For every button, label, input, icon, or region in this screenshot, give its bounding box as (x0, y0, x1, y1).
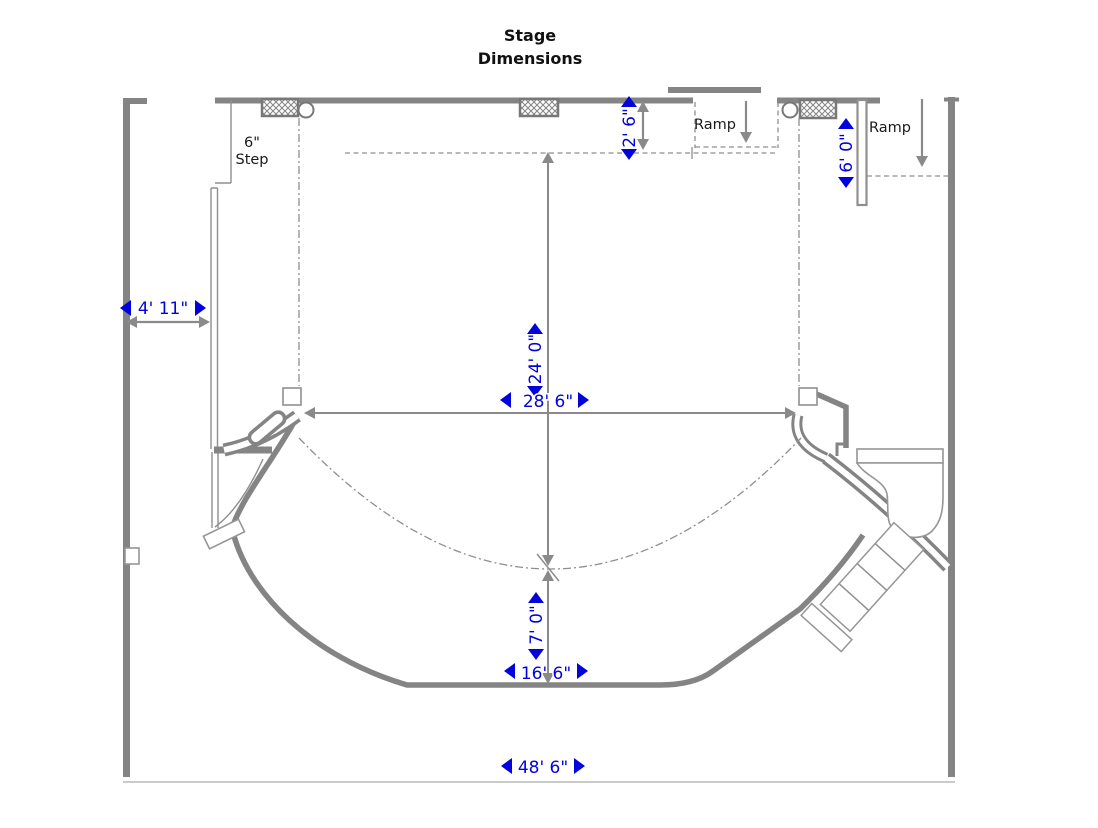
dim-arrow-left-icon (500, 392, 511, 408)
dimension-proscenium-width: 28' 6" (500, 392, 589, 412)
dim-arrow-up-icon (527, 323, 543, 334)
curtain-box-center (520, 99, 558, 116)
dim-value: 7' 0" (527, 605, 547, 645)
pole-circle-left (299, 103, 314, 118)
dim-arrow-down-icon (528, 649, 544, 660)
dimension-stage-depth: 24' 0" (526, 323, 546, 397)
dimension-left-entry-width: 4' 11" (120, 299, 206, 319)
stage-plan-svg: Stage Dimensions 6" Step Ramp Ramp 2' 6"… (0, 0, 1098, 828)
stage-dimensions-diagram: Stage Dimensions 6" Step Ramp Ramp 2' 6"… (0, 0, 1098, 828)
arrow-left-icon (304, 407, 315, 419)
dim-arrow-down-icon (621, 149, 637, 160)
wall-outlet-box (125, 548, 139, 564)
dim-arrow-left-icon (501, 758, 512, 774)
dim-arrow-right-icon (574, 758, 585, 774)
arrow-down-icon (542, 555, 554, 566)
dim-arrow-down-icon (838, 177, 854, 188)
dim-value: 48' 6" (518, 758, 568, 778)
pole-circle-right (783, 103, 798, 118)
dim-arrow-right-icon (195, 300, 206, 316)
curtain-box-left (262, 99, 298, 116)
column-left (283, 388, 301, 405)
dim-arrow-right-icon (577, 663, 588, 679)
dimension-labels: 2' 6" 6' 0" 4' 11" 24' 0" 28' 6" 7' 0" (120, 96, 857, 778)
dim-arrow-left-icon (504, 663, 515, 679)
dim-value: 2' 6" (620, 108, 640, 148)
step-label-line2: Step (235, 152, 268, 168)
dim-value: 6' 0" (837, 133, 857, 173)
dimension-apron-front-width: 16' 6" (504, 663, 588, 684)
dim-arrow-up-icon (528, 592, 544, 603)
text-labels: Stage Dimensions 6" Step Ramp Ramp (235, 26, 910, 168)
step-label-line1: 6" (244, 135, 260, 151)
column-right (799, 388, 817, 405)
lower-door-jamb-lines (212, 452, 218, 528)
ramp-right-wall (858, 100, 867, 205)
dim-arrow-right-icon (578, 392, 589, 408)
page-title-line2: Dimensions (478, 49, 583, 68)
dim-arrow-up-icon (838, 118, 854, 129)
dim-value: 24' 0" (526, 334, 546, 384)
arrow-down-icon (740, 132, 752, 143)
arrow-right-icon (199, 316, 210, 328)
curtain-arc (299, 438, 801, 569)
ramp-right-label: Ramp (869, 120, 911, 136)
dimension-right-ramp-length: 6' 0" (837, 118, 857, 188)
dim-value: 4' 11" (138, 299, 188, 319)
dim-value: 16' 6" (521, 664, 571, 684)
step-corridor-walls (125, 100, 231, 564)
arrow-down-icon (916, 156, 928, 167)
dim-value: 28' 6" (523, 392, 573, 412)
toilet-tank (857, 449, 943, 463)
ramp-top-label: Ramp (694, 117, 736, 133)
dimension-apron-depth: 7' 0" (527, 592, 547, 660)
curtain-box-right (800, 100, 836, 118)
step-corridor-line (211, 100, 231, 449)
page-title-line1: Stage (504, 26, 556, 45)
dimension-proscenium-offset: 2' 6" (620, 96, 640, 160)
dimension-overall-width: 48' 6" (501, 758, 585, 778)
